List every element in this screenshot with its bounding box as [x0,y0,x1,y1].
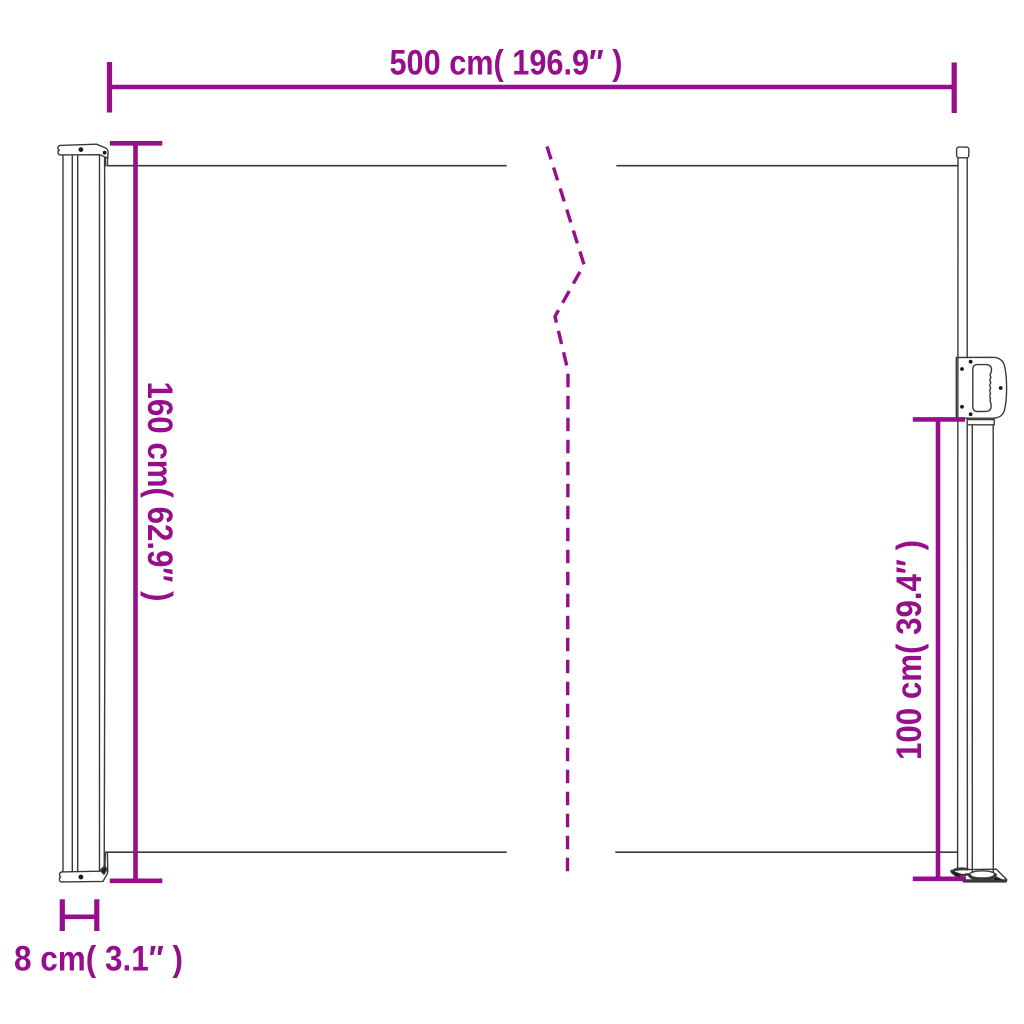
svg-text:160 cm( 62.9″ ): 160 cm( 62.9″ ) [140,382,179,602]
svg-text:100 cm( 39.4″ ): 100 cm( 39.4″ ) [890,540,929,760]
svg-text:8 cm( 3.1″ ): 8 cm( 3.1″ ) [14,940,183,979]
svg-text:500 cm( 196.9″ ): 500 cm( 196.9″ ) [390,44,623,83]
